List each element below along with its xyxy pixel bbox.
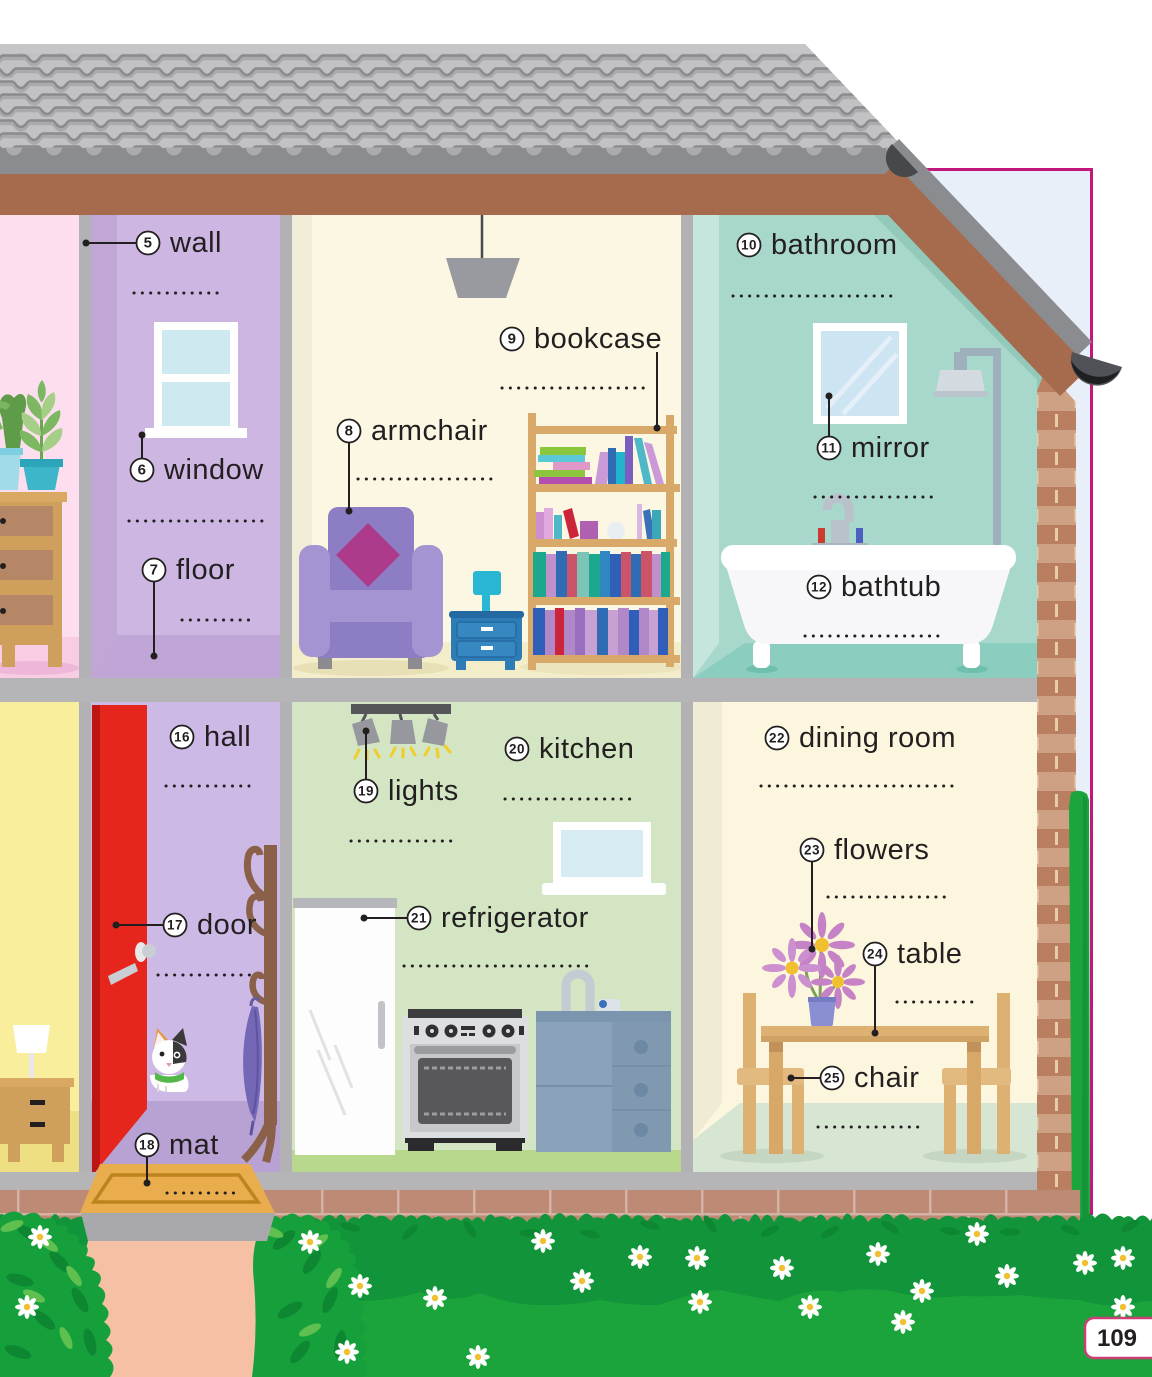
svg-text:5: 5 bbox=[144, 235, 153, 252]
svg-text:16: 16 bbox=[174, 730, 190, 745]
svg-text:bathtub: bathtub bbox=[841, 571, 941, 603]
svg-text:20: 20 bbox=[509, 742, 525, 757]
svg-text:door: door bbox=[197, 909, 257, 941]
svg-text:12: 12 bbox=[811, 580, 827, 595]
svg-text:floor: floor bbox=[176, 554, 235, 586]
svg-text:18: 18 bbox=[139, 1138, 155, 1153]
svg-text:mat: mat bbox=[169, 1129, 219, 1161]
svg-text:11: 11 bbox=[821, 441, 836, 456]
svg-text:24: 24 bbox=[867, 947, 883, 962]
svg-text:109: 109 bbox=[1097, 1325, 1137, 1352]
svg-text:25: 25 bbox=[824, 1071, 840, 1086]
svg-text:10: 10 bbox=[741, 238, 757, 253]
svg-text:9: 9 bbox=[508, 331, 517, 348]
svg-text:22: 22 bbox=[769, 731, 785, 746]
svg-text:flowers: flowers bbox=[834, 834, 929, 866]
svg-text:8: 8 bbox=[345, 423, 354, 440]
svg-text:dining room: dining room bbox=[799, 722, 956, 754]
svg-text:21: 21 bbox=[411, 911, 427, 926]
svg-text:armchair: armchair bbox=[371, 415, 488, 447]
svg-text:6: 6 bbox=[138, 462, 147, 479]
svg-text:17: 17 bbox=[167, 918, 183, 933]
svg-text:23: 23 bbox=[804, 843, 820, 858]
svg-text:lights: lights bbox=[388, 775, 459, 807]
svg-text:kitchen: kitchen bbox=[539, 733, 634, 765]
svg-text:hall: hall bbox=[204, 721, 251, 753]
svg-text:refrigerator: refrigerator bbox=[441, 902, 589, 934]
svg-text:table: table bbox=[897, 938, 962, 970]
svg-text:19: 19 bbox=[358, 784, 374, 799]
svg-text:bathroom: bathroom bbox=[771, 229, 898, 261]
svg-text:wall: wall bbox=[169, 227, 222, 259]
svg-text:mirror: mirror bbox=[851, 432, 930, 464]
svg-text:bookcase: bookcase bbox=[534, 323, 662, 355]
svg-text:chair: chair bbox=[854, 1062, 919, 1094]
svg-text:7: 7 bbox=[150, 562, 159, 579]
svg-text:window: window bbox=[163, 454, 264, 486]
